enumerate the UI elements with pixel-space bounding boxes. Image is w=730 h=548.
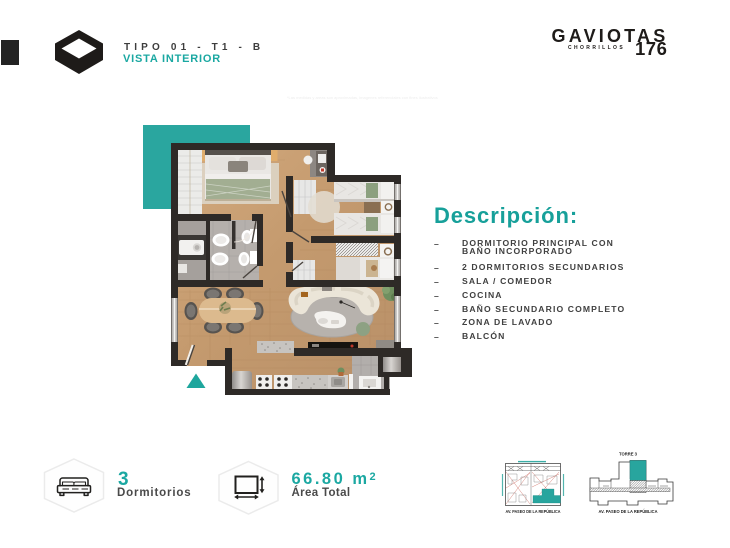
svg-text:AV. PASEO DE LA REPÚBLICA: AV. PASEO DE LA REPÚBLICA: [599, 508, 659, 514]
svg-text:AV. PASEO DE LA REPÚBLICA: AV. PASEO DE LA REPÚBLICA: [506, 508, 562, 514]
svg-text:TORRE 3: TORRE 3: [619, 452, 638, 457]
